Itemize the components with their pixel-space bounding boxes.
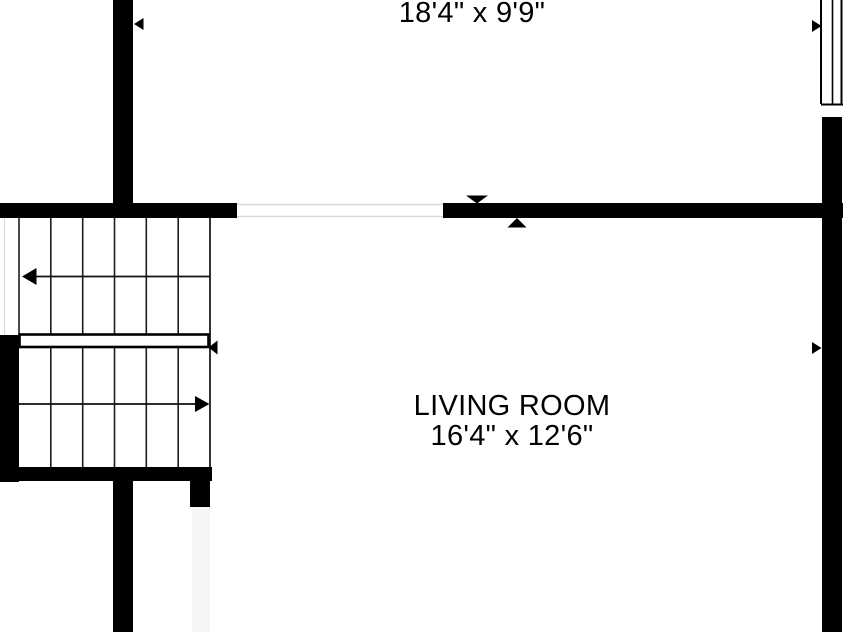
living-room-dimensions: 16'4" x 12'6" xyxy=(362,421,662,451)
wall-stub-faint-trace xyxy=(192,507,210,632)
upper-room-label: 18'4" x 9'9" xyxy=(322,0,622,29)
staircase xyxy=(5,218,218,467)
stair-lower-flight xyxy=(19,348,210,467)
wall-bottom-horizontal xyxy=(0,467,212,481)
wall-bottom-stub xyxy=(190,467,210,507)
window xyxy=(821,0,843,105)
wall-top-right-segment xyxy=(443,203,843,218)
floor-plan: 18'4" x 9'9" LIVING ROOM 16'4" x 12'6" xyxy=(0,0,843,632)
upper-room-dimensions: 18'4" x 9'9" xyxy=(322,0,622,29)
living-room-label: LIVING ROOM 16'4" x 12'6" xyxy=(362,391,662,451)
walls xyxy=(0,0,843,632)
wall-stair-left-stub xyxy=(0,335,19,482)
wall-right xyxy=(822,117,842,632)
stair-upper-flight xyxy=(19,218,210,334)
wall-top-left-segment xyxy=(0,203,237,218)
door-opening xyxy=(237,205,443,217)
stair-landing-rail xyxy=(20,335,218,355)
opening-marker-down-icon xyxy=(466,196,488,204)
wall-bottom-vertical xyxy=(113,467,133,632)
wall-left-vertical xyxy=(113,0,133,218)
opening-marker-up-icon xyxy=(508,218,527,228)
markers xyxy=(134,18,822,354)
right-wall-marker-icon xyxy=(812,342,822,354)
living-room-name: LIVING ROOM xyxy=(362,391,662,421)
left-wall-marker-icon xyxy=(134,18,144,30)
floor-plan-canvas xyxy=(0,0,843,632)
